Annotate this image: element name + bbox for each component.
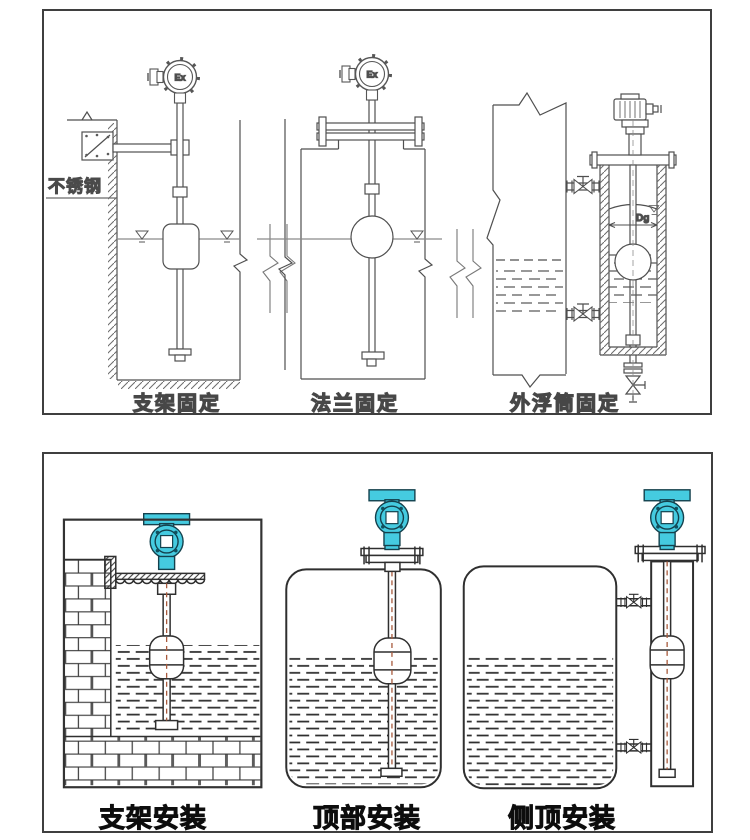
stem-end-stop — [362, 352, 384, 359]
mounting-flange — [642, 553, 698, 560]
tank-right-wall — [234, 120, 247, 380]
liquid-dashes — [467, 657, 614, 786]
caption-external-chamber-fixing: 外浮筒固定 — [510, 387, 620, 416]
brick-floor — [65, 737, 260, 786]
dg-label: Dg — [636, 213, 649, 224]
liquid-dashes — [289, 656, 438, 785]
stem-coupling — [385, 562, 400, 571]
fixing-diagrams-svg: Ex — [44, 11, 710, 413]
caption-flange-fixing: 法兰固定 — [311, 387, 399, 416]
connection-pipes — [566, 183, 600, 318]
caption-bracket-fixing: 支架固定 — [133, 387, 221, 416]
connection-pipes — [616, 599, 651, 751]
flange-plate — [317, 133, 424, 140]
vessel-bottom — [493, 375, 566, 387]
liquid-dashes — [116, 645, 260, 735]
wall-hatch — [108, 123, 117, 379]
caption-top-installation: 顶部安装 — [313, 798, 421, 835]
fixing-methods-panel: Ex — [42, 9, 712, 415]
mount-plate — [105, 556, 116, 588]
stem-end-stop — [381, 768, 402, 776]
caption-bracket-installation: 支架安装 — [99, 798, 207, 835]
flange-bolt — [319, 117, 326, 146]
tank-right-wall — [419, 149, 432, 379]
stem-end-stop — [156, 721, 178, 730]
bracket-arm — [113, 144, 172, 152]
figure-flange-fixing — [257, 56, 442, 380]
break-symbol — [263, 224, 278, 313]
stainless-steel-label: 不锈钢 — [48, 172, 102, 197]
break-symbol — [450, 229, 465, 318]
figure-external-chamber-fixing: Dg — [487, 93, 676, 402]
ball-float — [351, 216, 393, 258]
liquid-dashes — [496, 264, 563, 312]
stem-end-stop — [659, 769, 675, 777]
flange-bolt — [592, 152, 597, 168]
float — [163, 224, 199, 269]
break-symbol — [280, 224, 295, 313]
break-mark — [82, 112, 92, 120]
vessel-top-and-right — [493, 93, 566, 374]
left-boundary — [279, 119, 292, 370]
mounting-flange — [366, 555, 418, 562]
stem-collar — [173, 187, 187, 197]
break-symbol — [466, 229, 481, 318]
installation-methods-panel: 支架安装 顶部安装 侧顶安装 — [42, 452, 713, 833]
flange-bolt — [415, 117, 422, 146]
figure-bracket-fixing — [46, 59, 247, 390]
figure-bracket-installation — [64, 514, 261, 788]
figure-top-installation — [286, 490, 441, 787]
flange-plate — [317, 123, 424, 130]
caption-side-top-installation: 侧顶安装 — [508, 798, 616, 835]
flange-bolt — [669, 152, 674, 168]
installation-diagrams-svg — [44, 454, 711, 831]
figure-side-top-installation — [464, 490, 705, 788]
stem-end-stop — [169, 349, 191, 355]
neck-tube — [629, 134, 641, 155]
vessel-left-wall — [487, 105, 500, 375]
cable-gland — [646, 104, 653, 114]
brick-wall — [65, 559, 111, 736]
stem-collar — [365, 184, 379, 194]
bracket-shelf — [116, 573, 205, 579]
